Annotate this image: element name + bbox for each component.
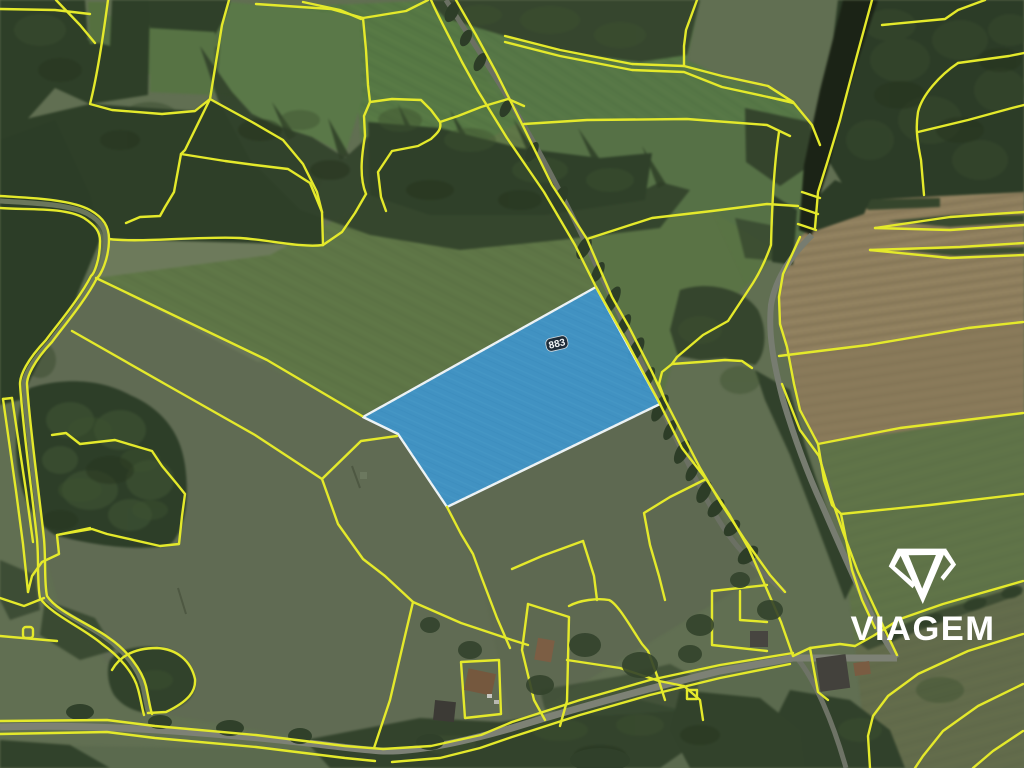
svg-text:VIAGEM: VIAGEM (850, 610, 995, 648)
